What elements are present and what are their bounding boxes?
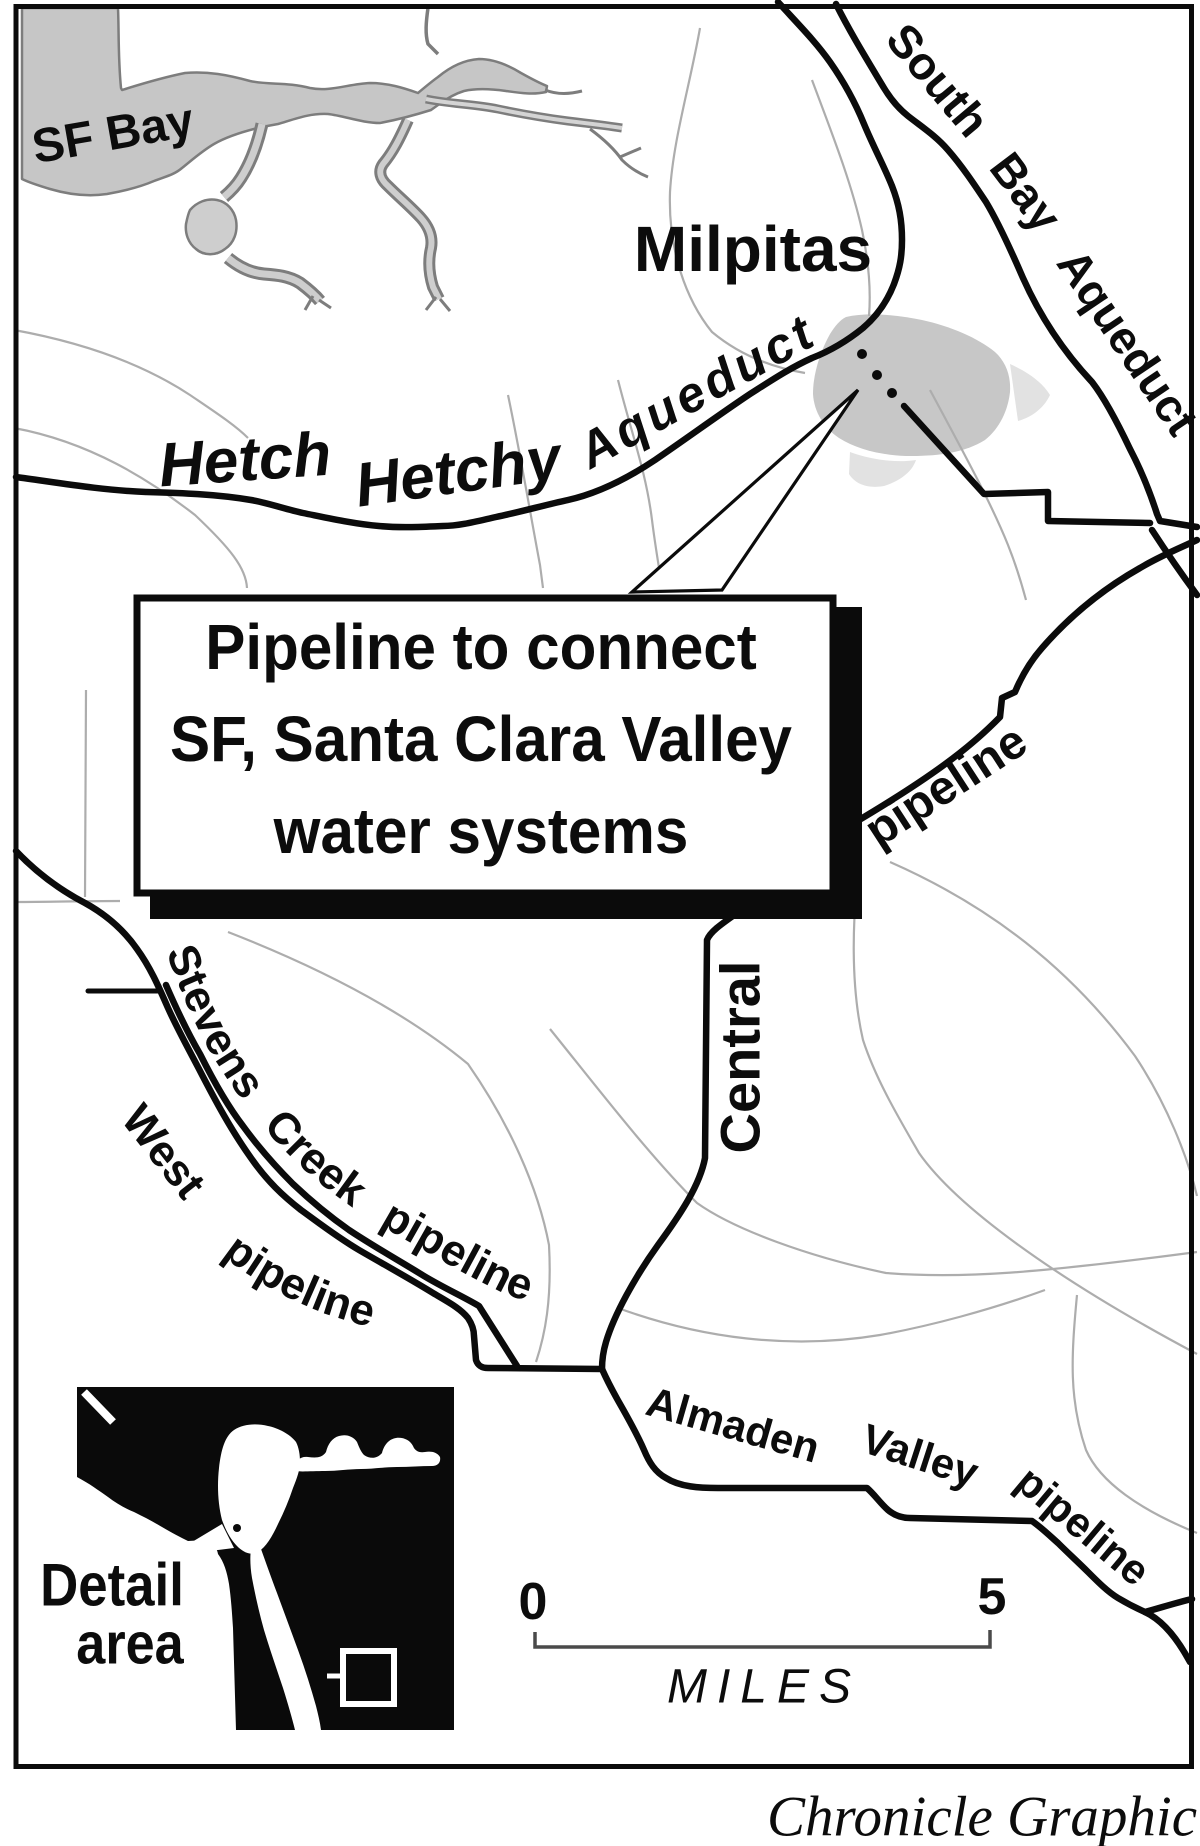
svg-text:Stevens Creek pipeline: Stevens Creek pipeline	[157, 938, 540, 1311]
svg-text:pipeline: pipeline	[216, 1224, 381, 1337]
